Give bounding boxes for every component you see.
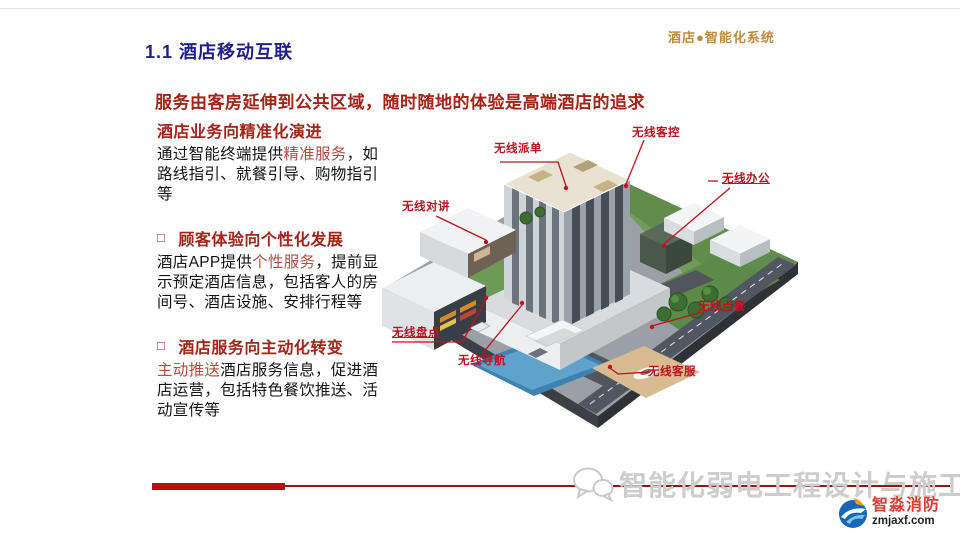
body-highlight-text: 精准服务	[283, 146, 346, 163]
subtitle: 服务由客房延伸到公共区域，随时随地的体验是高端酒店的追求	[155, 88, 645, 113]
corner-label: 酒店●智能化系统	[668, 27, 775, 46]
logo-text-block: 智淼消防 zmjaxf.com	[872, 497, 940, 528]
body-text: 酒店APP提供	[157, 254, 252, 271]
diagram-label-intercom: 无线对讲	[402, 198, 450, 214]
bullet-heading-text: 顾客体验向个性化发展	[178, 226, 343, 250]
zmjaxf-logo-icon	[838, 497, 868, 529]
page-title: 1.1 酒店移动互联	[145, 38, 293, 64]
body-text: 通过智能终端提供	[157, 146, 283, 163]
square-bullet-icon: □	[157, 230, 165, 245]
bullet-block-precision: 酒店业务向精准化演进 通过智能终端提供精准服务，如路线指引、就餐引导、购物指引等	[157, 118, 391, 205]
diagram-label-guest-control: 无线客控	[632, 124, 680, 140]
diagram-label-ordering: 无线点餐	[698, 298, 746, 314]
bullet-heading: □ 顾客体验向个性化发展	[157, 226, 391, 250]
diagram-label-dispatch: 无线派单	[494, 140, 542, 156]
diagram-label-navigation: 无线导航	[458, 352, 506, 368]
bullet-body: 主动推送酒店服务信息，促进酒店运营，包括特色餐饮推送、活动宣传等	[157, 361, 391, 421]
bullet-heading-text: 酒店业务向精准化演进	[157, 118, 322, 142]
logo-name: 智淼消防	[872, 497, 940, 514]
bullet-heading-text: 酒店服务向主动化转变	[178, 334, 343, 358]
isometric-hotel-illustration	[378, 122, 810, 434]
bullet-body: 酒店APP提供个性服务，提前显示预定酒店信息，包括客人的房间号、酒店设施、安排行…	[157, 253, 391, 313]
diagram-label-office: 无线办公	[722, 170, 770, 186]
chat-bubbles-icon	[572, 466, 614, 502]
square-bullet-icon: □	[157, 338, 165, 353]
diagram-label-service: 无线客服	[648, 363, 696, 379]
zmjaxf-logo: 智淼消防 zmjaxf.com	[838, 497, 940, 529]
body-highlight-text: 主动推送	[157, 362, 220, 379]
logo-url: zmjaxf.com	[872, 514, 940, 528]
body-highlight-text: 个性服务	[252, 254, 315, 271]
bottom-accent-bar	[152, 483, 285, 490]
bullet-heading: 酒店业务向精准化演进	[157, 118, 391, 142]
bullet-heading: □ 酒店服务向主动化转变	[157, 334, 391, 358]
slide-canvas: 酒店●智能化系统 1.1 酒店移动互联 服务由客房延伸到公共区域，随时随地的体验…	[0, 0, 960, 540]
bullet-list: 酒店业务向精准化演进 通过智能终端提供精准服务，如路线指引、就餐引导、购物指引等…	[157, 118, 391, 442]
campus-diagram: 无线派单 无线客控 无线办公 无线对讲 无线盘点 无线导航 无线点餐 无线客服	[378, 122, 810, 434]
diagram-label-inventory: 无线盘点	[392, 324, 440, 340]
bullet-block-personalization: □ 顾客体验向个性化发展 酒店APP提供个性服务，提前显示预定酒店信息，包括客人…	[157, 226, 391, 313]
top-border-line	[0, 8, 960, 9]
bullet-block-proactive: □ 酒店服务向主动化转变 主动推送酒店服务信息，促进酒店运营，包括特色餐饮推送、…	[157, 334, 391, 421]
bullet-body: 通过智能终端提供精准服务，如路线指引、就餐引导、购物指引等	[157, 145, 391, 205]
